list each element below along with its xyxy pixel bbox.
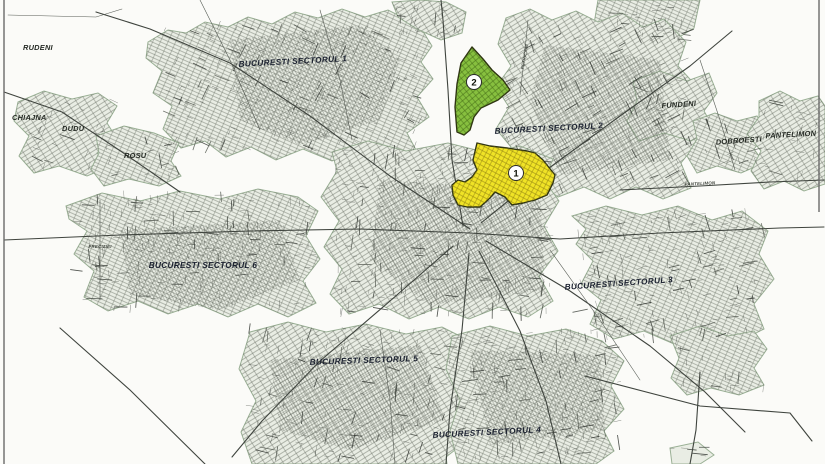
zone-2-number: 2 (471, 78, 476, 89)
map-canvas: 2 1 BUCURESTI SECTORUL 1 BUCURESTI SECTO… (0, 0, 825, 464)
sector-6-label: BUCURESTI SECTORUL 6 (149, 261, 258, 270)
bucharest-map: 2 1 BUCURESTI SECTORUL 1 BUCURESTI SECTO… (0, 0, 825, 464)
street-label-preciziei: PRECIZIEI (88, 244, 112, 249)
place-label-chiajna: CHIAJNA (12, 113, 47, 122)
place-label-rudeni: RUDENI (23, 43, 54, 52)
place-label-rosu: ROSU (124, 151, 147, 160)
place-label-dudu: DUDU (62, 124, 85, 133)
zone-1-number: 1 (513, 169, 519, 180)
